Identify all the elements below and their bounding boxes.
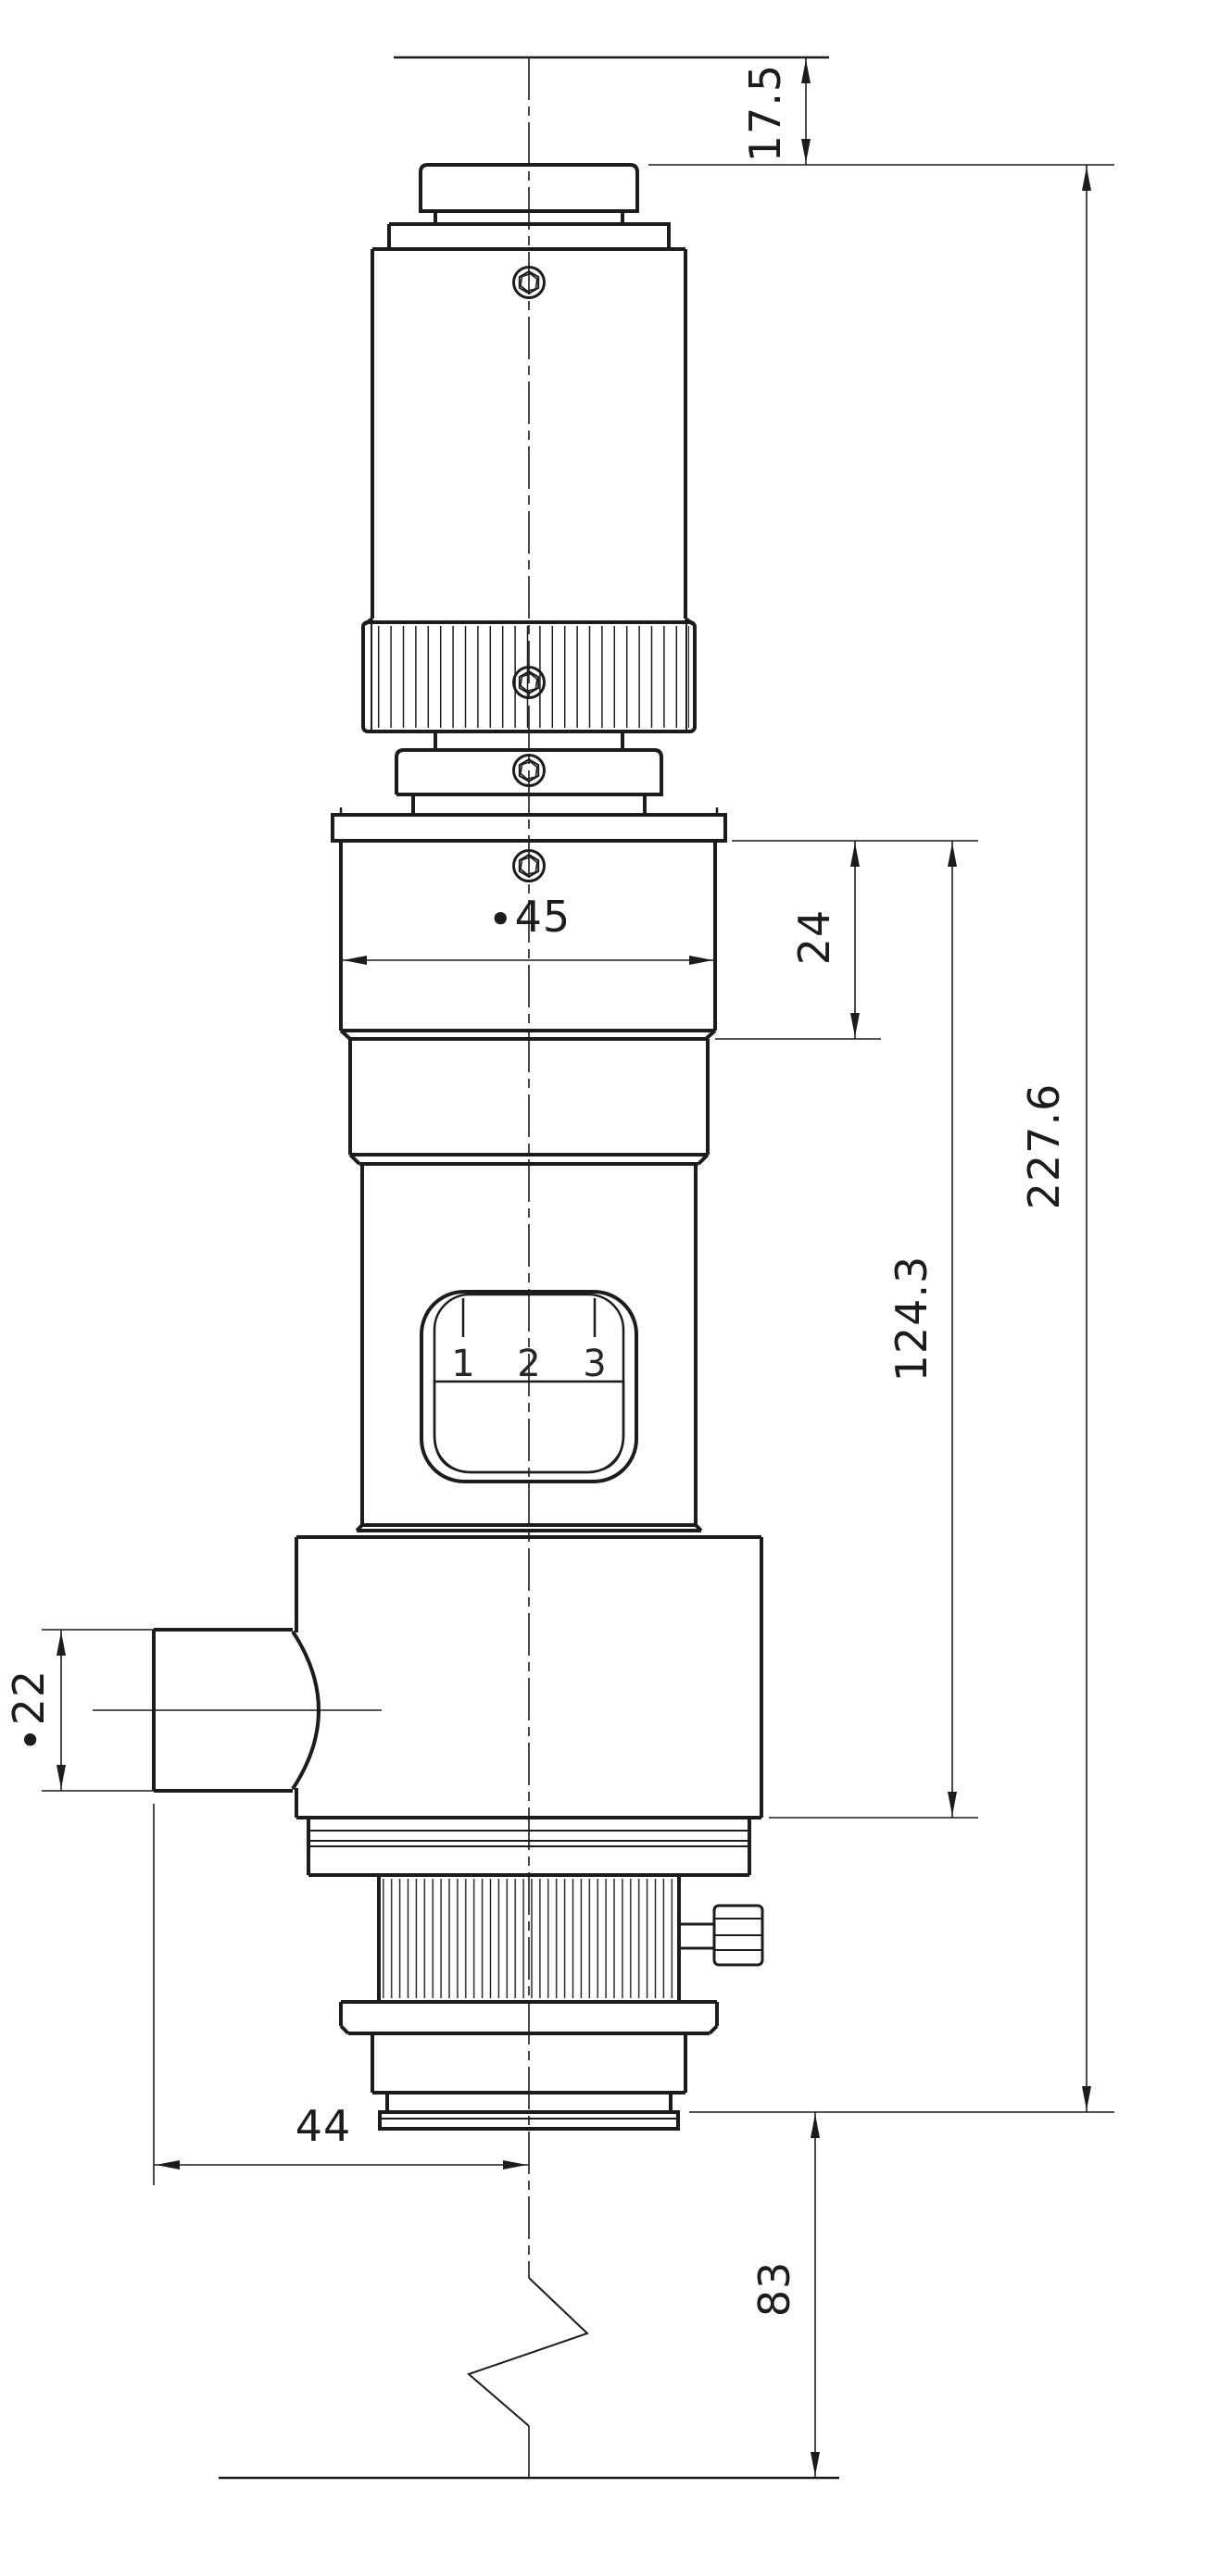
upper-knurled-ring [363,622,695,732]
dim-227-6-label: 227.6 [1019,1083,1069,1210]
body-chamfer [341,1031,715,1039]
side-port-section [154,1525,761,1818]
dim-24: 24 [715,841,978,1039]
dim-24-label: 24 [789,909,839,966]
dim-44-label: 44 [295,2101,352,2151]
upper-knurl-hatch [369,626,689,728]
thumbscrew-head-lines [714,1919,762,1950]
dim-dia-45: ∙45 [341,892,715,965]
thumbscrew-boss [679,1924,714,1948]
dim-124-3: 124.3 [769,841,978,1818]
dim-17-5-label: 17.5 [740,64,790,162]
dim-227-6: 227.6 [689,165,1114,2112]
technical-drawing-page: 1 2 3 [0,0,1207,2576]
scale-tick-3: 3 [583,1343,606,1385]
main-body [341,841,715,1525]
lower-knurl-hatch [383,1879,675,1998]
microscope-tube-technical-drawing: 1 2 3 [0,0,1207,2576]
dim-124-3-label: 124.3 [886,1256,937,1382]
scale-tick-1: 1 [451,1343,474,1385]
dim-dia-22-label: ∙22 [4,1669,54,1753]
dim-dia-45-label: ∙45 [487,892,571,942]
dimension-annotations: 17.5 227.6 24 124.3 [4,57,1114,2478]
dim-17-5: 17.5 [648,57,1114,165]
break-zigzag [469,2278,587,2426]
dim-83-label: 83 [749,2261,799,2318]
scale-tick-2: 2 [517,1343,540,1385]
selector-tube-shoulder [357,1525,701,1531]
clamp-thumbscrew [679,1906,762,1965]
